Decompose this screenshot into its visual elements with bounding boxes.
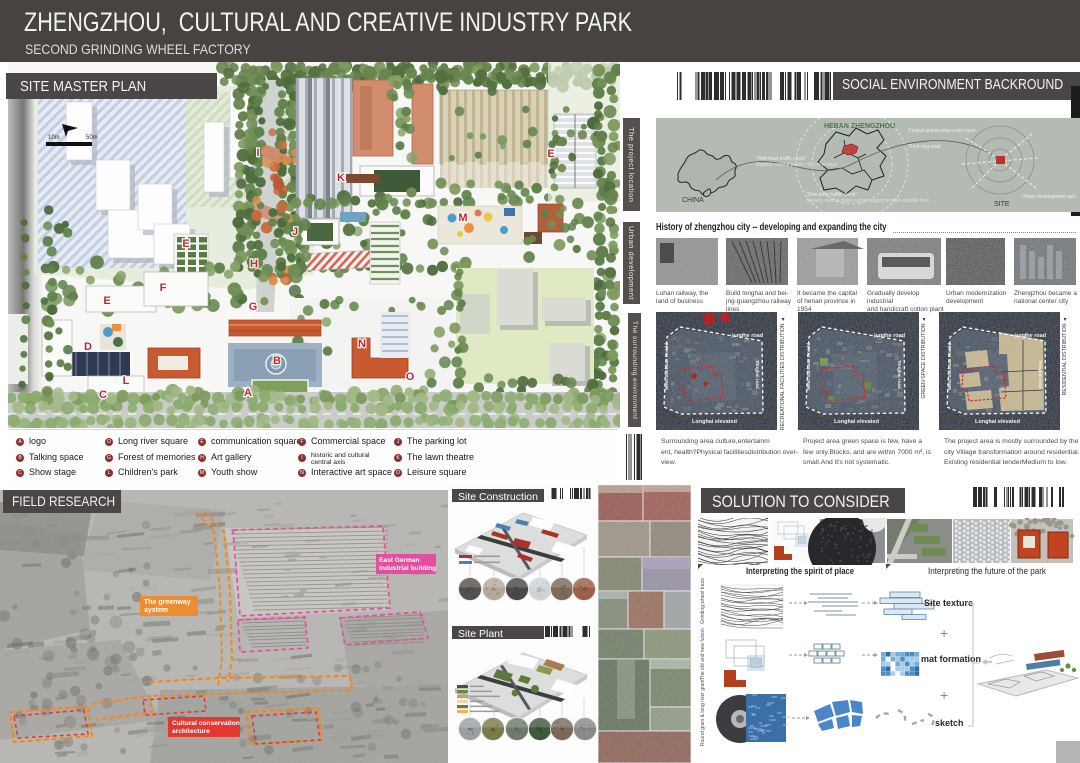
svg-text:F: F xyxy=(160,282,167,294)
svg-text:I: I xyxy=(256,147,259,159)
svg-text:50m: 50m xyxy=(86,135,98,141)
svg-text:system: system xyxy=(144,607,168,614)
svg-text:Namely central plains urban ag: Namely central plains urban agglomeratio… xyxy=(806,198,929,204)
svg-text:West Sanhuan Roadd: West Sanhuan Roadd xyxy=(806,343,811,390)
svg-text:Grinding wheel trace: Grinding wheel trace xyxy=(700,578,706,624)
svg-text:N: N xyxy=(358,338,366,350)
svg-text:D: D xyxy=(84,341,92,353)
svg-text:Tongbai road: Tongbai road xyxy=(897,360,902,389)
svg-text:Tongbai road: Tongbai road xyxy=(1038,360,1043,389)
svg-text:industrial building: industrial building xyxy=(379,565,436,572)
svg-text:Tongbai road: Tongbai road xyxy=(755,360,760,389)
svg-text:G: G xyxy=(249,301,258,313)
svg-text:Central plains urban core laye: Central plains urban core layer xyxy=(908,128,976,134)
svg-text:CHINA: CHINA xyxy=(682,197,704,204)
svg-text:A: A xyxy=(244,387,252,399)
svg-text:Longhai elevated: Longhai elevated xyxy=(692,419,737,425)
svg-text:Urban development axis: Urban development axis xyxy=(1022,194,1076,200)
svg-text:Cultural conservation: Cultural conservation xyxy=(172,720,240,727)
svg-text:West Sanhuan Roadd: West Sanhuan Roadd xyxy=(947,343,952,390)
svg-text:E: E xyxy=(103,295,110,307)
svg-text:The old and new fusion: The old and new fusion xyxy=(700,628,706,680)
svg-text:K: K xyxy=(337,172,345,184)
svg-text:M: M xyxy=(458,212,467,224)
svg-text:The greenway: The greenway xyxy=(144,599,191,606)
svg-text:E: E xyxy=(182,238,189,250)
svg-text:O: O xyxy=(406,371,415,383)
svg-text:Third ring road: Third ring road xyxy=(908,144,941,150)
svg-text:E: E xyxy=(547,148,554,160)
svg-text:Site texture: Site texture xyxy=(924,598,973,608)
svg-text:+: + xyxy=(940,687,948,703)
svg-text:jumihe road: jumihe road xyxy=(873,333,905,339)
svg-text:L: L xyxy=(123,375,130,387)
svg-text:jumihe road: jumihe road xyxy=(1014,333,1046,339)
svg-text:Longhai elevated: Longhai elevated xyxy=(975,419,1020,425)
svg-text:jumihe road: jumihe road xyxy=(731,333,763,339)
svg-text:mat formation: mat formation xyxy=(921,654,981,664)
svg-text:Namely central plains city clo: Namely central plains city close layer xyxy=(756,162,838,168)
svg-text:C: C xyxy=(99,389,107,401)
svg-text:architecture: architecture xyxy=(172,728,210,735)
svg-text:J: J xyxy=(292,226,298,238)
svg-text:B: B xyxy=(273,355,281,367)
svg-text:Longhai elevated: Longhai elevated xyxy=(834,419,879,425)
svg-text:H: H xyxy=(250,258,258,270)
svg-text:10m: 10m xyxy=(48,135,60,141)
svg-text:West Sanhuan Roadd: West Sanhuan Roadd xyxy=(664,343,669,390)
svg-text:East German: East German xyxy=(379,557,420,564)
svg-text:+: + xyxy=(940,625,948,641)
svg-text:HEBAN ZHENGZHOU: HEBAN ZHENGZHOU xyxy=(824,123,895,130)
svg-text:SITE: SITE xyxy=(994,201,1010,208)
svg-text:Round grain & long river grain: Round grain & long river grain xyxy=(700,679,706,746)
svg-text:sketch: sketch xyxy=(935,718,964,728)
